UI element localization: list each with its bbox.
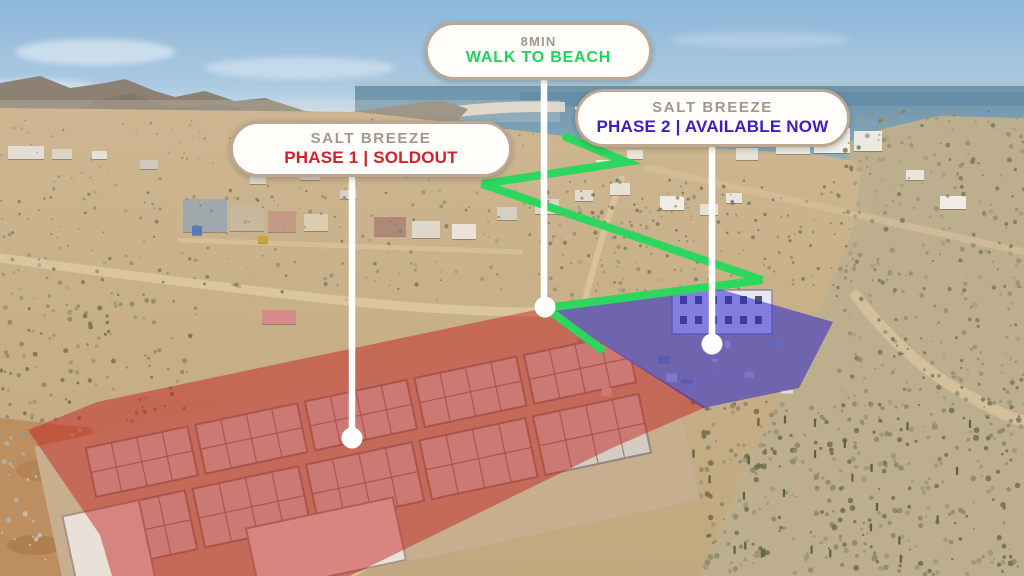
- phase1-marker-dot: [342, 428, 363, 449]
- phase1-callout-title: SALT BREEZE: [311, 131, 432, 148]
- beach-marker-dot: [535, 297, 556, 318]
- aerial-marketing-image: 8MIN WALK TO BEACH SALT BREEZE PHASE 1 |…: [0, 0, 1024, 576]
- phase2-callout: SALT BREEZE PHASE 2 | AVAILABLE NOW: [575, 89, 850, 147]
- phase2-marker-dot: [702, 334, 723, 355]
- aerial-photo: [0, 0, 1024, 576]
- beach-callout: 8MIN WALK TO BEACH: [425, 22, 652, 80]
- beach-callout-label: WALK TO BEACH: [466, 49, 611, 67]
- phase2-callout-title: SALT BREEZE: [652, 100, 773, 117]
- beach-callout-time: 8MIN: [521, 35, 557, 50]
- phase2-callout-status: PHASE 2 | AVAILABLE NOW: [597, 117, 829, 136]
- phase1-callout-status: PHASE 1 | SOLDOUT: [284, 148, 457, 167]
- phase1-callout: SALT BREEZE PHASE 1 | SOLDOUT: [230, 121, 512, 177]
